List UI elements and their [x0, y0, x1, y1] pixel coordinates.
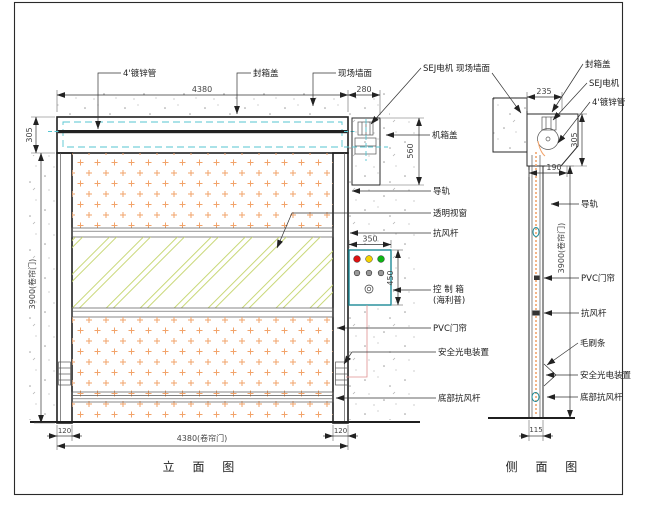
control-box — [349, 250, 391, 305]
dim-235: 235 — [536, 87, 551, 96]
side-label-site-wall: 现场墙面 — [456, 63, 491, 74]
label-wind-bar: 抗风杆 — [433, 228, 459, 239]
side-label-sej-motor: SEJ电机 — [589, 78, 620, 89]
dim-120-right: 120 — [334, 427, 347, 435]
indicator-red — [354, 256, 361, 263]
dim-350: 350 — [362, 235, 377, 244]
indicator-green — [378, 256, 385, 263]
label-pipe: 4'镀锌管 — [123, 68, 156, 79]
label-site-wall: 现场墙面 — [338, 68, 373, 79]
curtain-lower-panel — [72, 317, 333, 423]
label-safety: 安全光电装置 — [438, 347, 490, 358]
label-control-box-2: (海利普) — [433, 295, 465, 306]
label-sej-motor: SEJ电机 — [423, 63, 454, 74]
label-box-cover: 封箱盖 — [253, 68, 279, 79]
side-label-bottom-bar: 底部抗风杆 — [580, 392, 623, 403]
side-wall — [493, 98, 527, 152]
wind-bar-marker — [533, 311, 540, 316]
indicator-yellow — [366, 256, 373, 263]
cad-drawing-page: 4380 280 305 3900(卷帘门) 560 350 450 — [0, 0, 655, 518]
transparent-window — [72, 237, 333, 308]
dim-4380-top: 4380 — [192, 85, 212, 94]
side-label-brush: 毛刷条 — [580, 338, 606, 349]
pvc-marker — [534, 276, 540, 281]
dim-115: 115 — [529, 426, 542, 434]
side-label-pipe: 4'镀锌管 — [592, 97, 625, 108]
label-bottom-bar: 底部抗风杆 — [438, 393, 481, 404]
button-1 — [354, 270, 360, 276]
label-pvc: PVC门帘 — [433, 323, 467, 334]
label-control-box-1: 控 制 箱 — [433, 284, 464, 295]
label-rail: 导轨 — [433, 186, 451, 197]
side-label-wind-bar: 抗风杆 — [581, 308, 607, 319]
dim-560: 560 — [406, 143, 415, 158]
dim-3900-left: 3900(卷帘门) — [27, 259, 37, 310]
button-2 — [366, 270, 372, 276]
dim-305-left: 305 — [25, 127, 34, 142]
door-curtain — [72, 153, 333, 423]
curtain-upper-panel — [72, 153, 333, 228]
dim-190: 190 — [546, 163, 561, 172]
dim-120-left: 120 — [58, 427, 71, 435]
label-window: 透明视窗 — [433, 208, 467, 219]
label-machine-cover: 机箱盖 — [432, 130, 458, 141]
dim-450: 450 — [386, 270, 395, 285]
roller-shaft — [58, 130, 347, 133]
dim-3900-side: 3900(卷帘门) — [556, 223, 566, 274]
side-label-pvc: PVC门帘 — [581, 273, 615, 284]
elevation-title: 立 面 图 — [163, 459, 242, 474]
dim-305-side: 305 — [570, 132, 579, 147]
drawing-canvas: 4380 280 305 3900(卷帘门) 560 350 450 — [0, 0, 655, 518]
side-label-safety: 安全光电装置 — [580, 370, 632, 381]
button-3 — [378, 270, 384, 276]
side-label-box-cover: 封箱盖 — [585, 59, 611, 70]
dim-280: 280 — [356, 85, 371, 94]
dim-4380-bottom: 4380(卷帘门) — [177, 433, 228, 443]
side-title: 侧 面 图 — [506, 460, 585, 474]
side-label-rail: 导轨 — [581, 199, 599, 210]
